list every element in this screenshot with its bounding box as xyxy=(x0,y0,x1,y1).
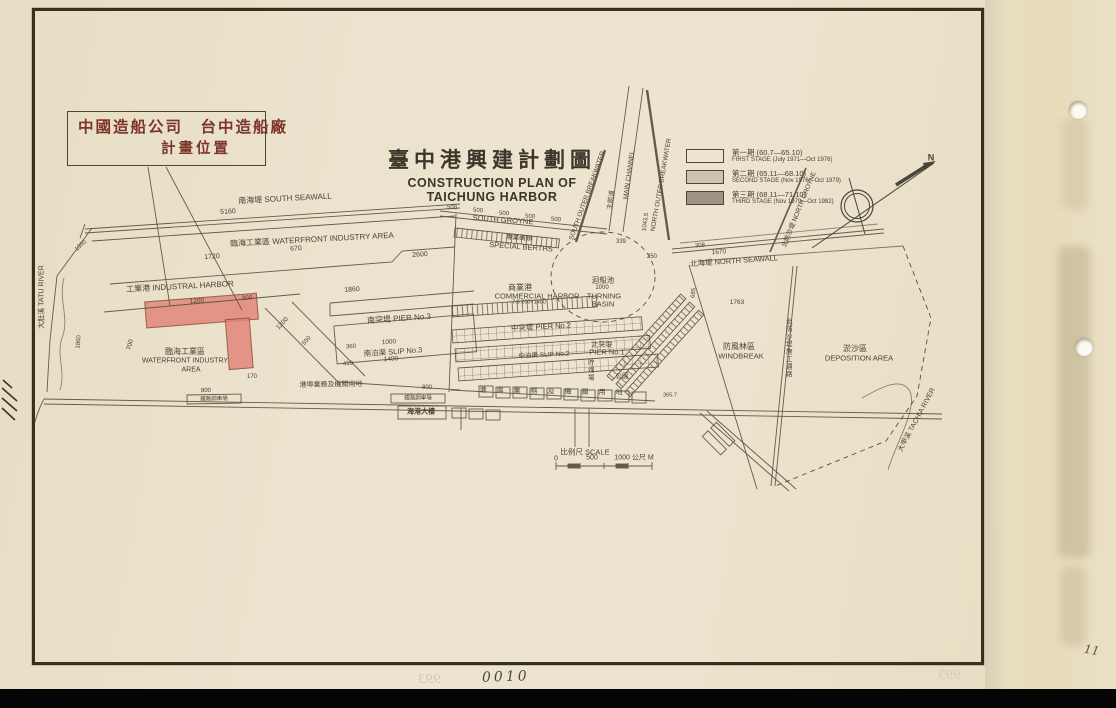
legend-item-stage-2: 第二期 (65.11—68.10) SECOND STAGE (Nov 1976… xyxy=(686,170,841,185)
legend-swatch-stage-3 xyxy=(686,191,724,205)
annotation-line-1: 中國造船公司 台中造船廠 xyxy=(78,115,257,137)
handwritten-sheet-number: 0010 xyxy=(482,668,530,686)
legend-swatch-stage-1 xyxy=(686,149,724,163)
punch-hole xyxy=(1075,338,1093,356)
legend-swatch-stage-2 xyxy=(686,170,724,184)
map-title-en-line1: CONSTRUCTION PLAN OF xyxy=(368,176,616,190)
scanned-map-page: 中國造船公司 台中造船廠 計畫位置 臺中港興建計劃圖 CONSTRUCTION … xyxy=(0,0,1116,708)
bleed-through-number: 993 xyxy=(418,672,441,686)
legend-label-zh: 第一期 (60.7—65.10) xyxy=(732,149,832,157)
bleed-through-number: 993 xyxy=(938,668,961,682)
shipyard-annotation-box: 中國造船公司 台中造船廠 計畫位置 xyxy=(67,111,266,166)
legend-label-en: SECOND STAGE (Nov 1976—Oct 1979) xyxy=(732,178,841,185)
stage-legend: 第一期 (60.7—65.10) FIRST STAGE (July 1971—… xyxy=(686,149,841,212)
legend-item-stage-1: 第一期 (60.7—65.10) FIRST STAGE (July 1971—… xyxy=(686,149,841,164)
annotation-line-2: 計畫位置 xyxy=(78,137,257,158)
punch-hole xyxy=(1069,101,1087,119)
scan-black-edge xyxy=(0,689,1116,708)
legend-label-zh: 第三期 (68.11—71.10) xyxy=(732,191,834,199)
map-title-zh: 臺中港興建計劃圖 xyxy=(368,144,616,174)
legend-label-en: FIRST STAGE (July 1971—Oct 1976) xyxy=(732,157,832,164)
legend-item-stage-3: 第三期 (68.11—71.10) THIRD STAGE (Nov 1979—… xyxy=(686,191,841,206)
map-title-en-line2: TAICHUNG HARBOR xyxy=(368,190,616,204)
map-title: 臺中港興建計劃圖 CONSTRUCTION PLAN OF TAICHUNG H… xyxy=(368,144,616,204)
legend-label-en: THIRD STAGE (Nov 1979—Oct 1982) xyxy=(732,199,834,206)
edge-hatch-marks xyxy=(2,380,17,420)
handwritten-page-number: 11 xyxy=(1083,642,1100,658)
map-sheet xyxy=(33,9,983,664)
legend-label-zh: 第二期 (65.11—68.10) xyxy=(732,170,841,178)
